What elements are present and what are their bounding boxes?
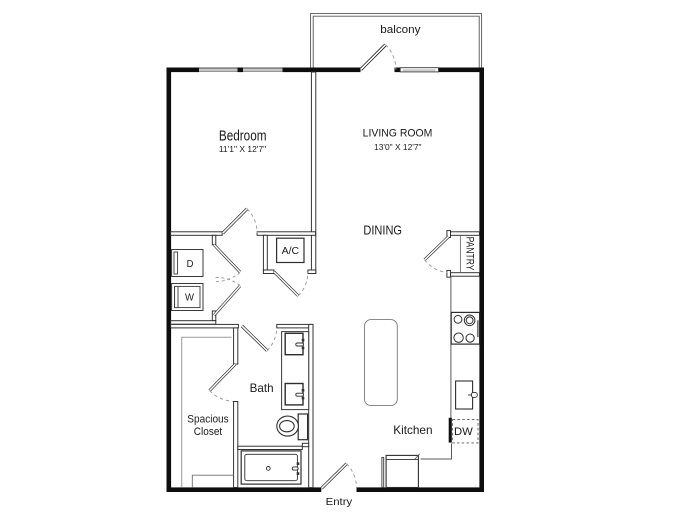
svg-text:Bedroom: Bedroom <box>219 129 267 145</box>
svg-text:DW: DW <box>454 426 474 438</box>
svg-text:Entry: Entry <box>326 497 353 508</box>
svg-text:Bath: Bath <box>250 381 274 395</box>
svg-text:LIVING ROOM: LIVING ROOM <box>363 128 433 140</box>
svg-text:D: D <box>187 259 194 270</box>
svg-text:balcony: balcony <box>380 24 421 36</box>
svg-text:W: W <box>185 293 195 304</box>
svg-text:11'1" X 12'7": 11'1" X 12'7" <box>219 144 266 154</box>
svg-text:PANTRY: PANTRY <box>464 237 476 271</box>
svg-text:13'0" X 12'7": 13'0" X 12'7" <box>374 142 422 152</box>
svg-text:Closet: Closet <box>194 426 223 438</box>
svg-text:A/C: A/C <box>282 246 299 257</box>
svg-text:DINING: DINING <box>363 223 402 237</box>
svg-text:Spacious: Spacious <box>187 413 229 425</box>
svg-text:Kitchen: Kitchen <box>393 423 432 437</box>
